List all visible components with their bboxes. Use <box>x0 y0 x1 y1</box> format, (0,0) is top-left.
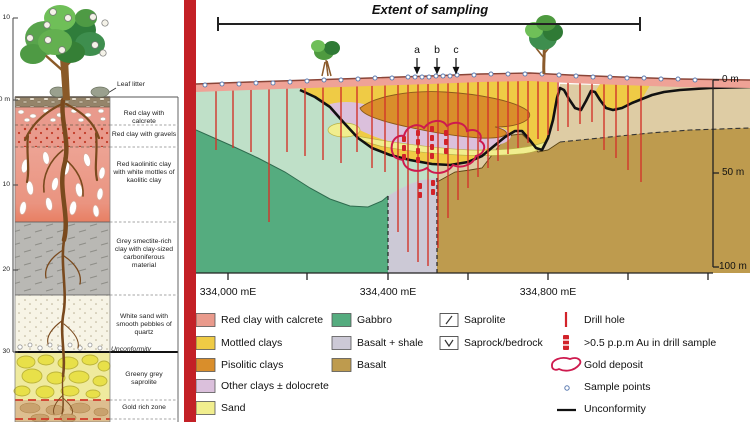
legend-saprock-bedrock: Saprock/bedrock <box>464 337 543 349</box>
legend-unconformity: Unconformity <box>584 403 646 415</box>
legend-sample-points: Sample points <box>584 381 651 393</box>
sample-point-symbol <box>565 386 569 390</box>
legend-basalt: Basalt <box>357 359 386 371</box>
marker-b: b <box>431 44 443 56</box>
section-title: Extent of sampling <box>330 2 530 17</box>
swatch-basalt-shale <box>332 337 351 350</box>
legend-other-clays: Other clays ± dolocrete <box>221 380 329 392</box>
soil-profile-panel <box>0 0 188 422</box>
gold-deposit-symbol <box>552 358 580 371</box>
legend-symbols <box>552 312 580 410</box>
label-gold-rich: Gold rich zone <box>112 404 176 412</box>
label-grey-smectite: Grey smectite-rich clay with clay-sized … <box>112 238 176 270</box>
left-scale-10-above: 10 <box>0 14 10 22</box>
legend-red-clay-calcrete: Red clay with calcrete <box>221 314 323 326</box>
left-scale-20: 20 <box>0 266 10 274</box>
label-red-kaolinitic: Red kaolinitic clay with white mottles o… <box>112 161 176 185</box>
legend-gabbro: Gabbro <box>357 314 392 326</box>
easting-axis <box>196 273 713 280</box>
legend-pisolitic-clays: Pisolitic clays <box>221 359 283 371</box>
legend-drill-hole: Drill hole <box>584 314 625 326</box>
label-greeny-grey: Greeny grey saprolite <box>112 371 176 387</box>
legend-saprolite: Saprolite <box>464 314 505 326</box>
tree <box>20 5 108 100</box>
marker-a: a <box>411 44 423 56</box>
swatch-mottled-clays <box>196 337 215 350</box>
extent-bracket <box>218 17 640 31</box>
swatch-saprock <box>440 337 458 350</box>
legend-basalt-shale: Basalt + shale <box>357 337 423 349</box>
au-intercept-symbol <box>562 335 570 350</box>
swatch-red-clay <box>196 314 215 327</box>
label-white-sand: White sand with smooth pebbles of quartz <box>112 313 176 337</box>
surface-bushes <box>50 87 109 97</box>
left-scale-10: 10 <box>0 181 10 189</box>
depth-50m: 50 m <box>722 167 744 179</box>
legend-mottled-clays: Mottled clays <box>221 337 282 349</box>
label-red-clay-calcrete: Red clay with calcrete <box>111 110 177 126</box>
easting-334000: 334,000 mE <box>168 286 288 298</box>
left-scale-30: 30 <box>0 348 10 356</box>
legend-au-intercept: >0.5 p.p.m Au in drill sample <box>584 337 716 349</box>
panel-divider <box>184 0 196 422</box>
geology-figure: 10 0 m 10 20 30 Leaf litter Red clay wit… <box>0 0 750 422</box>
label-unconformity-left: Unconformity <box>111 346 177 354</box>
swatch-other-clays <box>196 380 215 393</box>
swatch-gabbro <box>332 314 351 327</box>
basalt-shale-column <box>388 178 437 273</box>
swatch-pisolitic-clays <box>196 359 215 372</box>
legend-sand: Sand <box>221 402 246 414</box>
label-leaf-litter: Leaf litter <box>117 81 175 89</box>
swatch-sand <box>196 402 215 415</box>
left-scale-0m: 0 m <box>0 96 10 104</box>
depth-100m: 100 m <box>719 261 747 273</box>
swatch-basalt <box>332 359 351 372</box>
easting-334400: 334,400 mE <box>328 286 448 298</box>
legend-gold-deposit: Gold deposit <box>584 359 643 371</box>
sample-marker-arrows <box>415 58 459 73</box>
easting-334800: 334,800 mE <box>488 286 608 298</box>
depth-0m: 0 m <box>722 74 739 86</box>
marker-c: c <box>450 44 462 56</box>
label-red-clay-gravels: Red clay with gravels <box>111 131 177 139</box>
section-tree-small <box>311 40 340 76</box>
